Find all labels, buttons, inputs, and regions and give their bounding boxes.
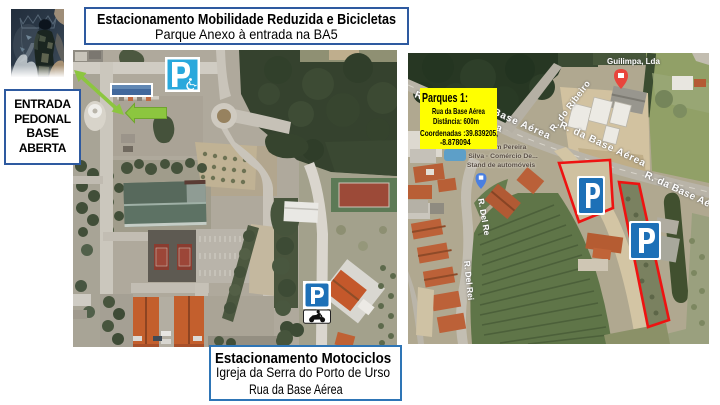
svg-text:Stand de automóveis: Stand de automóveis [467, 162, 536, 169]
svg-text:Silva · Comércio De...: Silva · Comércio De... [468, 153, 538, 160]
svg-text:Guilimpa, Lda: Guilimpa, Lda [607, 57, 660, 66]
